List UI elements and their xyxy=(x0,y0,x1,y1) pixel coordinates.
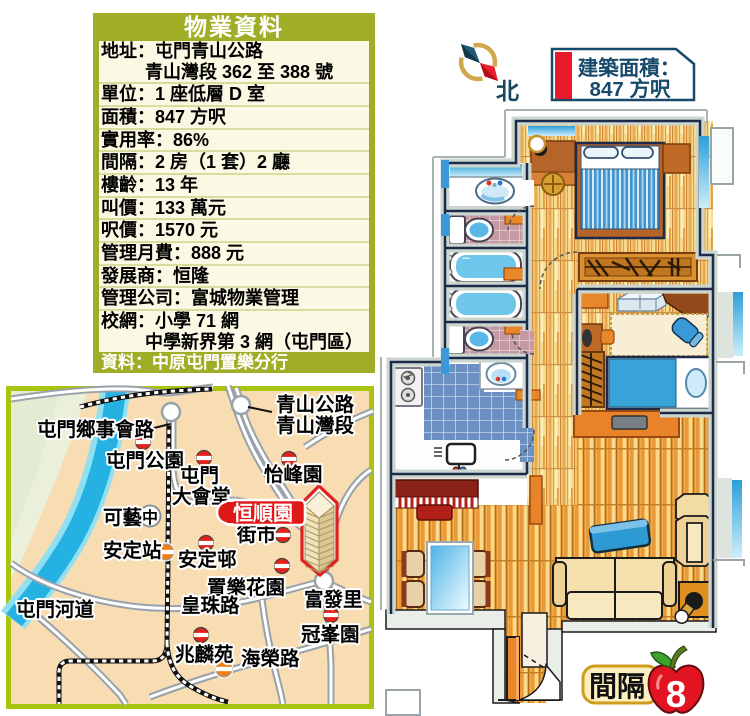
svg-text:847 方呎: 847 方呎 xyxy=(590,77,671,101)
svg-text:青山公路: 青山公路 xyxy=(276,393,355,416)
svg-text:8: 8 xyxy=(666,674,687,715)
svg-text:北: 北 xyxy=(496,78,519,104)
svg-text:屯門河道: 屯門河道 xyxy=(16,598,95,621)
svg-text:安定邨: 安定邨 xyxy=(178,548,237,571)
svg-text:中: 中 xyxy=(142,508,158,527)
svg-text:青山灣段: 青山灣段 xyxy=(276,414,355,437)
svg-text:富發里: 富發里 xyxy=(304,588,363,611)
svg-text:可藝: 可藝 xyxy=(103,507,143,529)
svg-text:屯門鄉事會路: 屯門鄉事會路 xyxy=(37,418,155,441)
svg-text:恒順園: 恒順園 xyxy=(233,502,293,525)
svg-text:街市: 街市 xyxy=(236,523,276,546)
svg-text:屯門: 屯門 xyxy=(180,464,219,487)
svg-text:海榮路: 海榮路 xyxy=(241,647,300,670)
svg-text:怡峰園: 怡峰園 xyxy=(264,463,323,486)
svg-text:間隔: 間隔 xyxy=(589,671,645,702)
svg-text:冠峯園: 冠峯園 xyxy=(301,623,360,646)
svg-text:安定站: 安定站 xyxy=(103,539,162,562)
svg-text:兆麟苑: 兆麟苑 xyxy=(175,643,234,666)
svg-text:屯門公園: 屯門公園 xyxy=(106,449,184,472)
svg-text:建築面積：: 建築面積： xyxy=(578,56,681,80)
svg-text:皇珠路: 皇珠路 xyxy=(181,594,240,617)
